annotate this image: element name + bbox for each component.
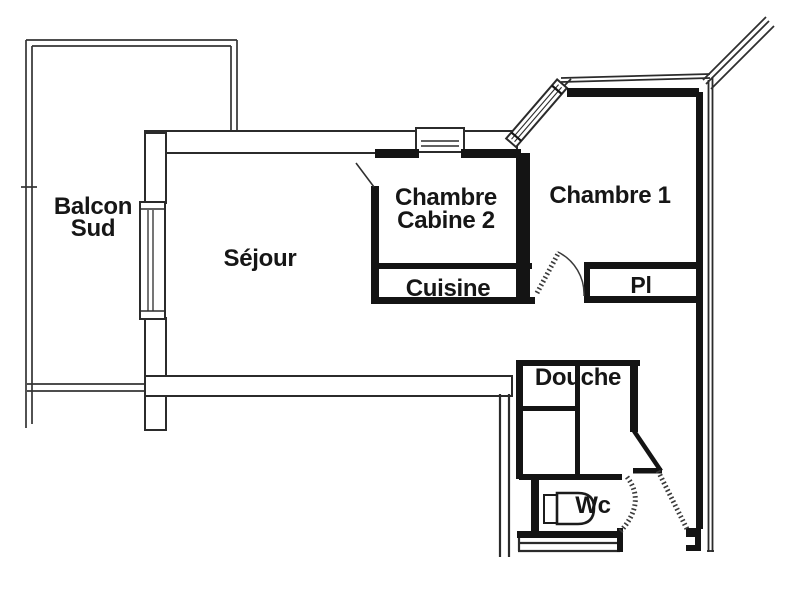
floor-plan-drawing — [0, 0, 800, 589]
door-chambre1-arc — [558, 252, 584, 296]
wall-cabine-right — [516, 153, 530, 300]
wall-south — [145, 376, 512, 396]
toilet-cistern — [544, 495, 557, 523]
room-label-wc: Wc — [575, 495, 610, 517]
door-entrance — [658, 471, 688, 531]
room-label-chambre1: Chambre 1 — [549, 185, 670, 207]
wall-cabine-top-east — [461, 149, 521, 158]
window-balcony-door — [140, 202, 165, 319]
northeast-exterior — [560, 74, 714, 552]
room-label-chambre-cabine-line2: Cabine 2 — [395, 209, 497, 232]
party-wall-diagonals — [703, 17, 774, 89]
wall-cabine-top-west — [375, 149, 419, 158]
wall-douche-left — [516, 360, 523, 479]
wall-east-inner — [696, 92, 703, 529]
wall-douche-right — [630, 360, 638, 432]
room-label-sejour: Séjour — [224, 248, 297, 270]
door-chambre1-leaf — [537, 252, 559, 293]
room-label-balcon-line2: Sud — [54, 218, 132, 240]
wall-west-upper — [145, 133, 166, 203]
wall-chambre1-top-inner — [567, 88, 699, 97]
window-diagonal — [506, 79, 567, 147]
interior-walls — [371, 88, 703, 551]
wall-cuisine-top — [371, 263, 532, 269]
door-chambre-cabine — [356, 163, 374, 187]
wall-wc-left — [531, 477, 539, 533]
door-chambre1 — [537, 252, 584, 296]
door-wc — [619, 477, 635, 533]
room-label-balcon: Balcon Sud — [54, 196, 132, 240]
room-label-douche: Douche — [535, 367, 621, 389]
window-north — [416, 128, 464, 152]
wall-douche-diagonal — [634, 431, 661, 471]
room-label-chambre-cabine: Chambre Cabine 2 — [395, 186, 497, 232]
wall-wc-bottom — [517, 531, 620, 538]
room-label-placard: Pl — [630, 274, 651, 296]
entrance-bracket — [686, 528, 701, 537]
wall-placard-top — [584, 262, 698, 269]
wall-placard-cap — [584, 266, 590, 299]
room-label-cuisine: Cuisine — [406, 278, 491, 300]
wall-douche-mid-h — [517, 406, 578, 411]
wall-west-lower — [145, 318, 166, 430]
floor-plan: Balcon Sud Séjour Chambre Cabine 2 Chamb… — [0, 0, 800, 589]
wall-cabine-left — [371, 186, 379, 303]
